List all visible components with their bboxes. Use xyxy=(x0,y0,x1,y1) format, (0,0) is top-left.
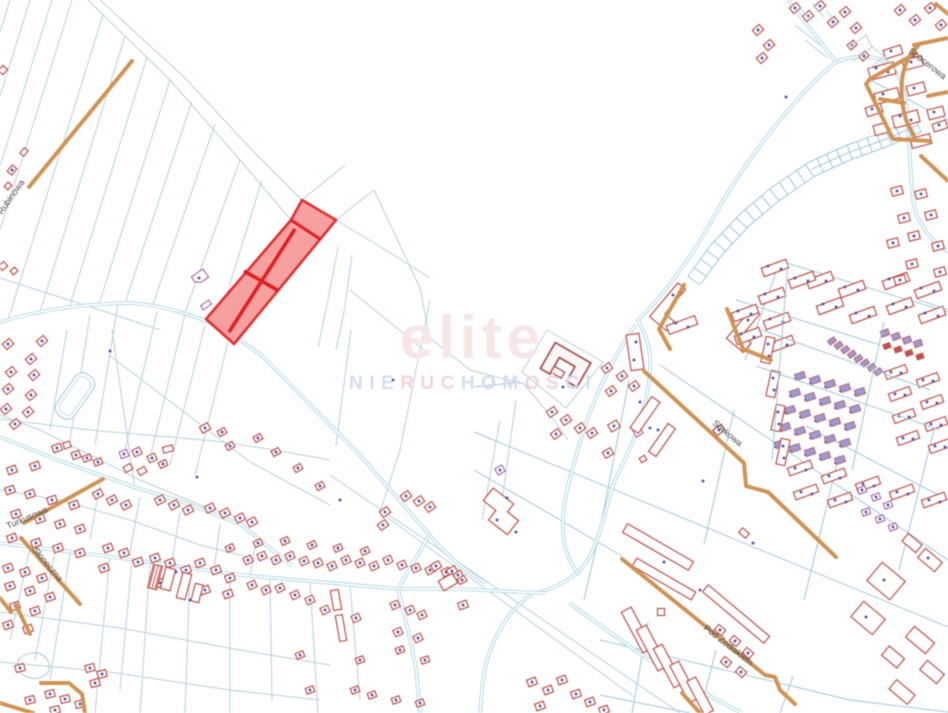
svg-text:elite: elite xyxy=(400,304,545,371)
svg-text:NIERUCHOMOŚCI: NIERUCHOMOŚCI xyxy=(349,372,597,394)
